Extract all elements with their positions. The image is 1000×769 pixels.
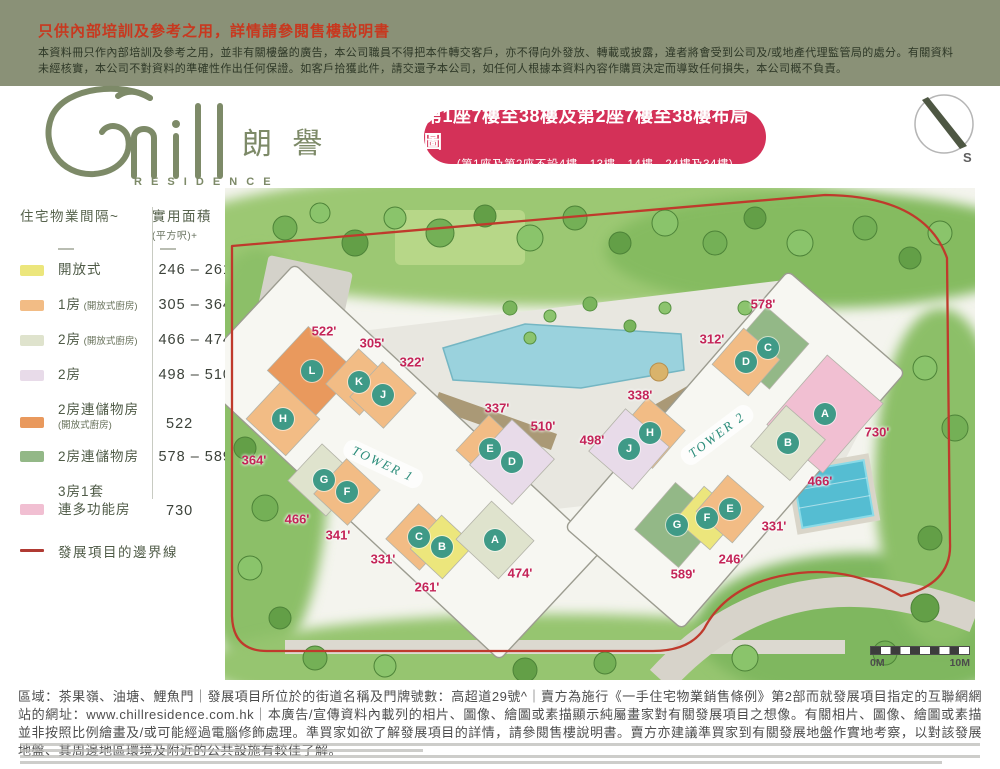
site-map: 0M 10M TOWER 1LKJHGFEDCBA522'305'322'337… [225,188,975,680]
legend-label: 2房 [58,365,144,385]
legend-swatch-two_bed_store [20,451,44,462]
banner-body: 本資料冊只作內部培訓及參考之用，並非有關樓盤的廣告，本公司職員不得把本件轉交客戶… [38,46,962,78]
logo-cjk-name: 朗 譽 [242,128,328,161]
legend-label: 2房連儲物房 [58,447,144,467]
legend-row: 2房連儲物房(開放式廚房)522 [20,400,232,432]
spa-circle [650,363,668,381]
unit-legend: 住宅物業間隔~ 實用面積 (平方呎)+ 開放式246 – 2611房 (開放式廚… [20,205,232,561]
legend-value: 305 – 364 [144,297,232,313]
logo-script-icon [48,89,220,176]
legend-value: 466 – 474 [144,332,232,348]
legend-swatch-two_bed_store_open [20,417,44,428]
legend-row: 2房498 – 510 [20,365,232,385]
legend-value: 246 – 261 [144,262,232,278]
legend-value: 522 [152,416,193,432]
legend-row: 2房連儲物房578 – 589 [20,447,232,467]
disclaimer-banner: 只供內部培訓及參考之用，詳情請參閱售樓說明書 本資料冊只作內部培訓及參考之用，並… [0,0,1000,86]
legend-label: 2房 (開放式廚房) [58,330,144,350]
legend-col2-subheader: (平方呎)+ [152,227,212,242]
legend-divider [152,207,153,499]
legend-label: 開放式 [58,260,144,280]
legend-swatch-open [20,265,44,276]
fine-print-illegible [20,743,980,767]
page: 只供內部培訓及參考之用，詳情請參閱售樓說明書 本資料冊只作內部培訓及參考之用，並… [0,0,1000,769]
logo-en-name: R E S I D E N C E [134,176,274,188]
boundary-line-label: 發展項目的邊界線 [58,541,178,561]
legend-row: 1房 (開放式廚房)305 – 364 [20,295,232,315]
compass-icon: S [908,88,980,172]
plan-subtitle: (第1座及第2座不設4樓、13樓、14樓、24樓及34樓) [457,156,734,172]
legend-row: 2房 (開放式廚房)466 – 474 [20,330,232,350]
site-map-illustration [225,188,975,680]
legend-value: 578 – 589 [144,449,232,465]
brand-logo: 朗 譽 R E S I D E N C E [38,84,368,188]
legend-label: 3房1套連多功能房 [58,482,152,519]
legend-label: 1房 (開放式廚房) [58,295,144,315]
legend-label: 2房連儲物房(開放式廚房) [58,400,152,432]
legend-boundary-row: 發展項目的邊界線 [20,541,232,561]
legend-rows: 開放式246 – 2611房 (開放式廚房)305 – 3642房 (開放式廚房… [20,260,232,519]
compass-south-label: S [963,150,972,165]
legend-value: 498 – 510 [144,367,232,383]
legend-swatch-one_bed [20,300,44,311]
boundary-line-swatch [20,549,44,552]
lawn [395,210,525,265]
logo-i-dot [172,120,180,128]
plan-title: 第1座7樓至38樓及第2座7樓至38樓布局圖 [424,102,766,154]
legend-swatch-two_bed [20,370,44,381]
legend-col1-header: 住宅物業間隔~ [20,205,138,242]
legend-swatch-three_bed [20,504,44,515]
legend-header-dashes [20,248,232,250]
banner-heading: 只供內部培訓及參考之用，詳情請參閱售樓說明書 [38,20,962,41]
plan-title-box: 第1座7樓至38樓及第2座7樓至38樓布局圖 (第1座及第2座不設4樓、13樓、… [424,110,766,164]
legend-value: 730 [152,503,193,519]
legend-row: 開放式246 – 261 [20,260,232,280]
legend-row: 3房1套連多功能房730 [20,482,232,519]
legend-col2-header: 實用面積 (平方呎)+ [138,205,212,242]
legend-swatch-two_bed_open [20,335,44,346]
